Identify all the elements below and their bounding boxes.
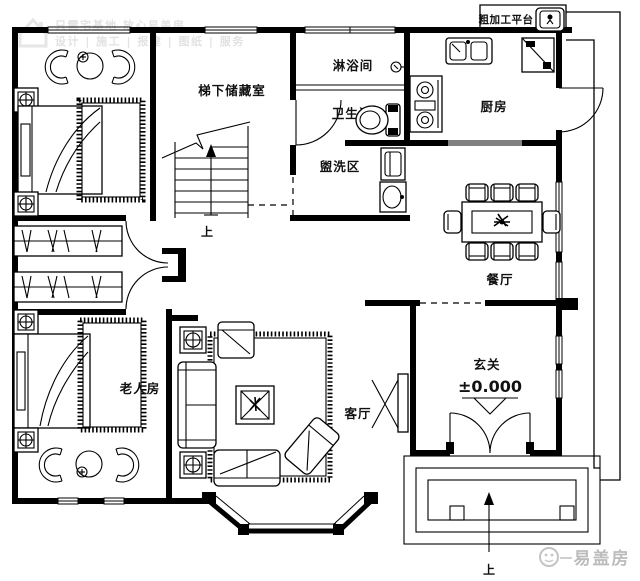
fan-chair-left: [39, 448, 62, 482]
entry-label: 玄关: [473, 357, 500, 372]
nightstand: [14, 310, 38, 334]
bay-window: [202, 492, 378, 535]
fridge-icon: [522, 38, 554, 72]
kitchen-sink-icon: [446, 38, 492, 64]
kitchen-label: 厨房: [480, 99, 507, 114]
bedroom-door: [126, 221, 168, 263]
dining-chair: [543, 211, 560, 233]
kitchen: 厨房: [410, 38, 554, 132]
dining-chair: [466, 184, 488, 201]
entrance-porch: 上: [404, 456, 600, 577]
platform-sink-icon: [536, 8, 564, 31]
watermark-services: 设计 | 施工 | 报建 | 图纸 | 服务: [55, 34, 245, 48]
speaker-stand: [180, 452, 206, 478]
platform-label: 粗加工平台: [479, 13, 534, 26]
bedroom-top: [14, 50, 143, 216]
dining-chair: [491, 243, 513, 260]
window-dining-right: [556, 182, 562, 300]
watermark-bottom-right: 易盖房: [540, 548, 631, 569]
speaker-stand: [180, 327, 206, 353]
fan-chair-right: [116, 448, 139, 482]
kitchen-terrace-door: [559, 88, 603, 132]
dining-table: [462, 202, 542, 242]
round-table: [76, 451, 102, 477]
sofa-bottom: [214, 450, 280, 486]
dining-chair: [491, 184, 513, 201]
staircase: 上 梯下储藏室: [162, 83, 290, 239]
bed: [18, 106, 102, 194]
elder-room: 老人房: [14, 310, 160, 482]
porch-up-arrow: [484, 492, 494, 552]
sofa-left: [178, 362, 216, 448]
bathroom-block: 淋浴间 卫生间 盥洗区: [320, 58, 410, 212]
living-label: 客厅: [343, 406, 371, 421]
kitchen-pass-window: [448, 141, 522, 145]
fan-chair-left: [45, 50, 68, 84]
living-room: 客厅: [178, 322, 408, 486]
armchair: [218, 322, 254, 358]
floor-plan-canvas: 只需宅基地 放心易盖房 设计 | 施工 | 报建 | 图纸 | 服务: [0, 0, 640, 581]
wash-basin-icon: [380, 182, 406, 212]
floor-plan-page: 只需宅基地 放心易盖房 设计 | 施工 | 报建 | 图纸 | 服务: [0, 0, 640, 581]
dining-room: 餐厅: [444, 184, 560, 287]
entry-double-door: [446, 413, 534, 454]
elder-room-door: [126, 267, 168, 309]
stove-icon: [410, 76, 442, 132]
dining-chair: [444, 211, 461, 233]
stairs-up-label: 上: [201, 224, 213, 239]
storage-label: 梯下储藏室: [198, 83, 266, 98]
tv-unit: [372, 374, 408, 432]
fan-chair-right: [112, 50, 135, 84]
window-shower-top: [305, 27, 395, 33]
brand-logo-icon: [540, 548, 558, 566]
terrace-outline: [566, 12, 620, 480]
stair-break-line: [162, 122, 250, 158]
recliner: [283, 416, 341, 476]
shower-label: 淋浴间: [333, 58, 374, 73]
elder-room-label: 老人房: [119, 381, 161, 396]
brand-watermark-text: 易盖房: [574, 548, 631, 569]
level-marker-icon: [462, 398, 518, 414]
toilet-icon: [356, 104, 400, 136]
nightstand: [14, 428, 38, 452]
dining-chair: [516, 243, 538, 260]
washing-machine-icon: [381, 148, 405, 180]
entry-level-value: ±0.000: [458, 377, 522, 396]
coffee-table: [236, 386, 274, 424]
window-storage-top: [205, 27, 257, 33]
entry-hall: 玄关 ±0.000: [458, 357, 522, 414]
wardrobes: [14, 226, 122, 302]
dining-label: 餐厅: [485, 272, 513, 287]
porch-up-label: 上: [483, 562, 495, 577]
nightstand: [14, 192, 38, 216]
wash-area-label: 盥洗区: [320, 159, 361, 174]
dining-chair: [466, 243, 488, 260]
dining-chair: [516, 184, 538, 201]
round-table: [77, 52, 103, 79]
